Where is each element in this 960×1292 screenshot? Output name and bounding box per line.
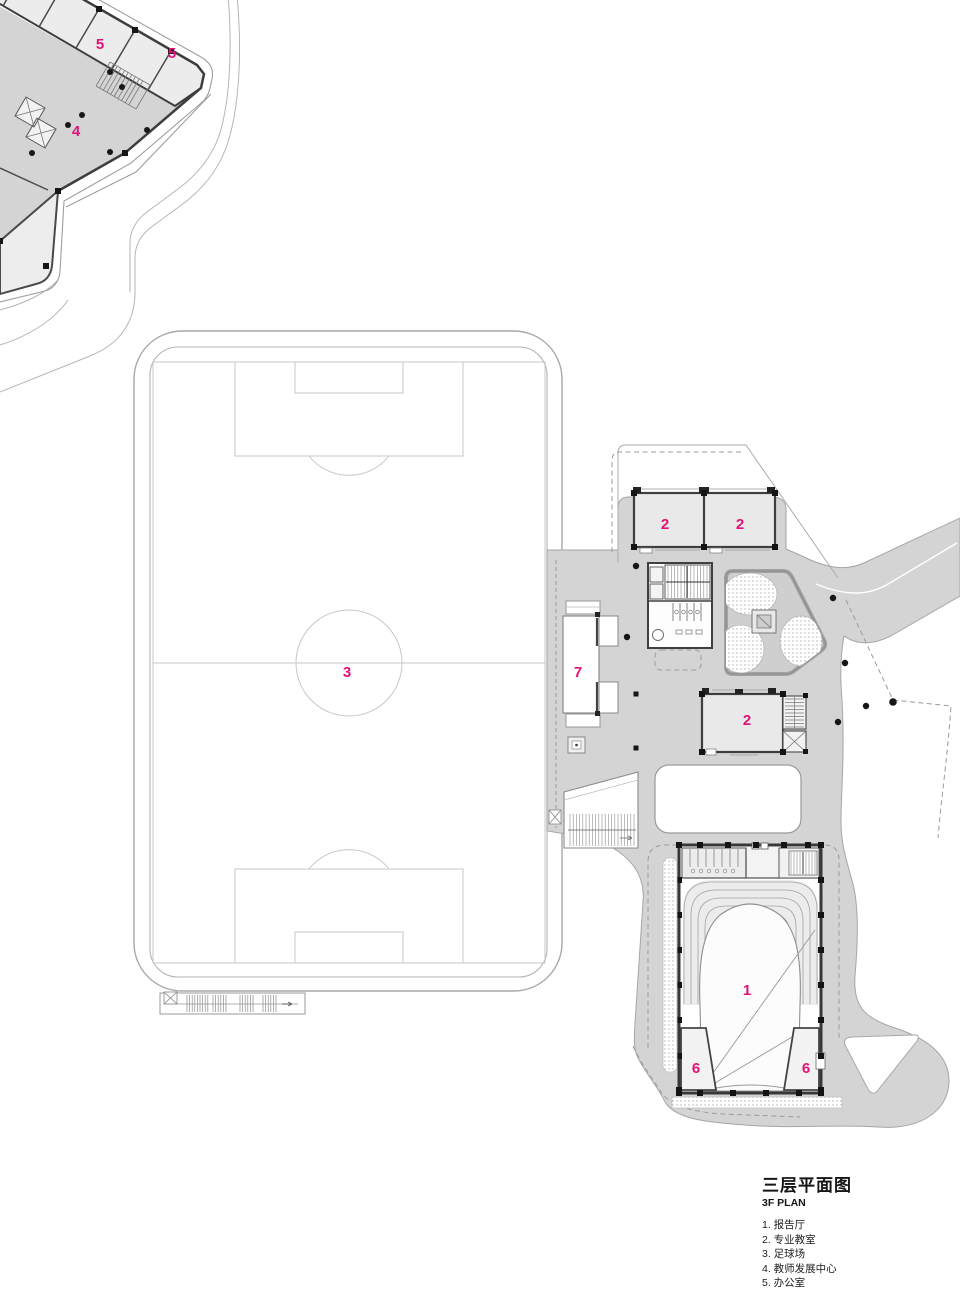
legend-item: 2. 专业教室 [762,1233,852,1248]
classroom-block-top [631,487,778,553]
legend-list: 1. 报告厅 2. 专业教室 3. 足球场 4. 教师发展中心 5. 办公室 6… [762,1218,852,1292]
room-label-2a: 2 [661,516,669,533]
room-label-5a: 5 [96,36,104,53]
legend-item: 3. 足球场 [762,1247,852,1262]
classroom-block-lower [699,688,808,755]
room-label-1: 1 [743,982,751,999]
legend-item: 5. 办公室 [762,1276,852,1291]
plan-title: 三层平面图 [762,1171,852,1196]
floor-plan-canvas: 4 5 5 3 7 2 2 2 1 6 6 [0,0,960,1292]
room-label-2b: 2 [736,516,744,533]
canopy-void [655,765,801,833]
room-label-7: 7 [574,664,582,681]
stair-core [648,563,712,648]
field-stair-strip [160,992,305,1014]
room-label-6a: 6 [692,1060,700,1077]
plan-subtitle: 3F PLAN [762,1197,852,1209]
teacher-development-building [0,0,213,302]
room-label-5b: 5 [168,45,176,62]
floor-plan-page: 4 5 5 3 7 2 2 2 1 6 6 三层平面图 3F PLAN 1. 报… [0,0,960,1292]
auditorium [663,842,842,1108]
legend-item: 1. 报告厅 [762,1218,852,1233]
title-block: 三层平面图 3F PLAN 1. 报告厅 2. 专业教室 3. 足球场 4. 教… [762,1171,852,1292]
room-label-3: 3 [343,664,351,681]
room-label-2c: 2 [743,712,751,729]
room-label-6b: 6 [802,1060,810,1077]
legend-item: 4. 教师发展中心 [762,1262,852,1277]
room-label-4: 4 [72,123,81,140]
